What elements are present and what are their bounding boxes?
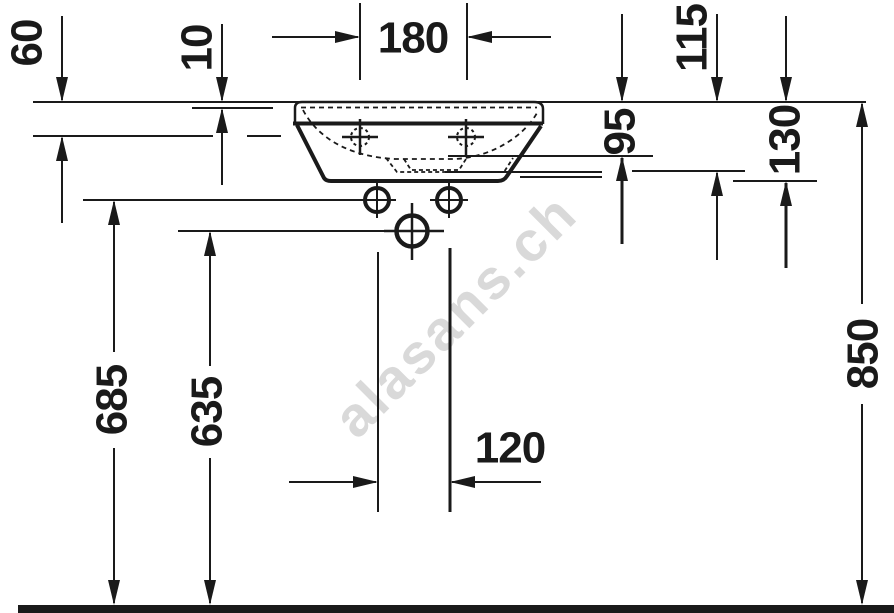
drain-recess-inner-hidden (404, 159, 466, 170)
arrow-60-up (56, 136, 68, 161)
arrow-130-down (780, 77, 792, 102)
arrow-10-down (216, 77, 228, 102)
arrow-180-right (335, 31, 360, 43)
arrow-130-up (780, 181, 792, 206)
dimension-drawing-svg: alasans.ch (0, 0, 894, 613)
dim-label-60: 60 (2, 20, 51, 67)
dim-label-115: 115 (667, 3, 716, 72)
arrow-95-down (616, 77, 628, 102)
watermark-text: alasans.ch (321, 181, 589, 449)
arrow-635-up (204, 231, 216, 256)
arrow-180-left (467, 31, 492, 43)
arrow-120-right (353, 476, 378, 488)
arrow-850-up (856, 102, 868, 127)
technical-drawing-canvas: alasans.ch (0, 0, 894, 613)
arrow-685-up (108, 200, 120, 225)
dim-label-850: 850 (838, 319, 887, 389)
arrow-635-down (204, 580, 216, 605)
basin-outline (293, 102, 543, 181)
basin-bowl-hidden (303, 110, 538, 159)
dim-label-685: 685 (87, 364, 136, 435)
arrow-120-left (450, 476, 475, 488)
dim-label-120: 120 (475, 423, 545, 472)
dim-label-180: 180 (378, 13, 448, 62)
arrow-115-up (711, 171, 723, 196)
arrow-10-up (216, 108, 228, 133)
arrow-60-down (56, 77, 68, 102)
arrow-850-down (856, 580, 868, 605)
dim-label-130: 130 (760, 105, 809, 175)
dim-label-635: 635 (182, 376, 231, 447)
dimension-labels: 60 10 180 115 95 130 685 635 120 850 (2, 3, 887, 472)
arrow-115-down (711, 77, 723, 102)
dim-label-95: 95 (595, 108, 644, 155)
arrow-95-up (616, 156, 628, 181)
floor-line (18, 605, 894, 613)
arrow-685-down (108, 580, 120, 605)
basin-rim-top (295, 102, 543, 124)
dim-label-10: 10 (172, 25, 221, 72)
